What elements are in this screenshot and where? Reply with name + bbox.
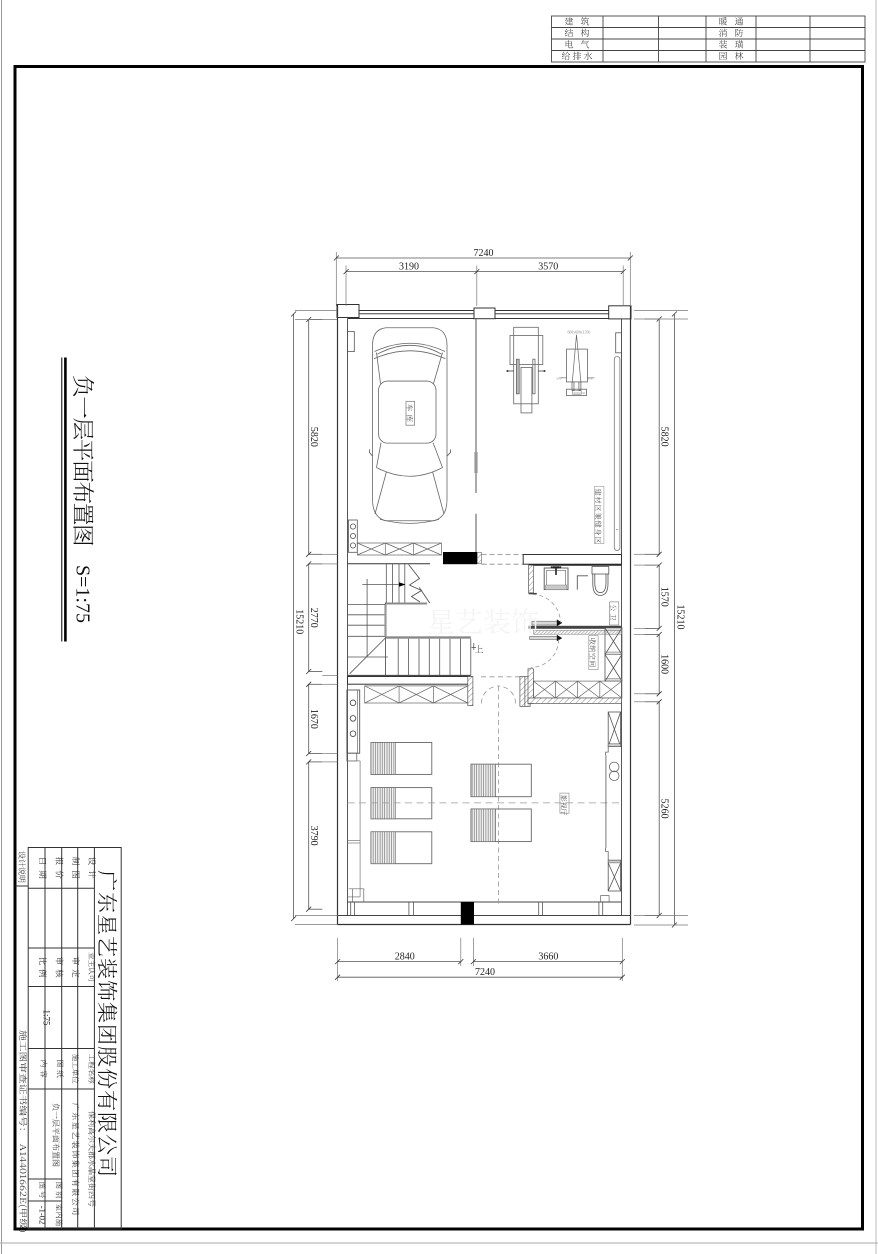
svg-text:3570: 3570 xyxy=(538,261,558,272)
svg-text:3790: 3790 xyxy=(308,826,319,846)
svg-text:3660: 3660 xyxy=(538,951,558,962)
svg-text:7240: 7240 xyxy=(474,248,494,259)
svg-text:600x300: 600x300 xyxy=(574,391,586,395)
svg-text:15210: 15210 xyxy=(674,605,685,630)
svg-text:1570: 1570 xyxy=(658,587,669,607)
svg-text:-1-02: -1-02 xyxy=(38,1206,48,1224)
svg-text:5820: 5820 xyxy=(308,427,319,447)
svg-text:1:75: 1:75 xyxy=(42,1009,52,1026)
svg-text:1600: 1600 xyxy=(658,654,669,674)
svg-text:1670: 1670 xyxy=(308,709,319,729)
svg-text:15210: 15210 xyxy=(293,609,304,634)
svg-text:7240: 7240 xyxy=(475,967,495,978)
svg-text:2770: 2770 xyxy=(308,608,319,628)
svg-text:3190: 3190 xyxy=(399,261,419,272)
svg-text:600x600x1350: 600x600x1350 xyxy=(568,331,591,335)
svg-text:5820: 5820 xyxy=(658,427,669,447)
svg-text:5260: 5260 xyxy=(658,799,669,819)
svg-text:2840: 2840 xyxy=(395,951,415,962)
svg-text:S=1:75: S=1:75 xyxy=(72,565,94,623)
svg-text:600: 600 xyxy=(557,377,562,381)
svg-text:600: 600 xyxy=(588,377,593,381)
